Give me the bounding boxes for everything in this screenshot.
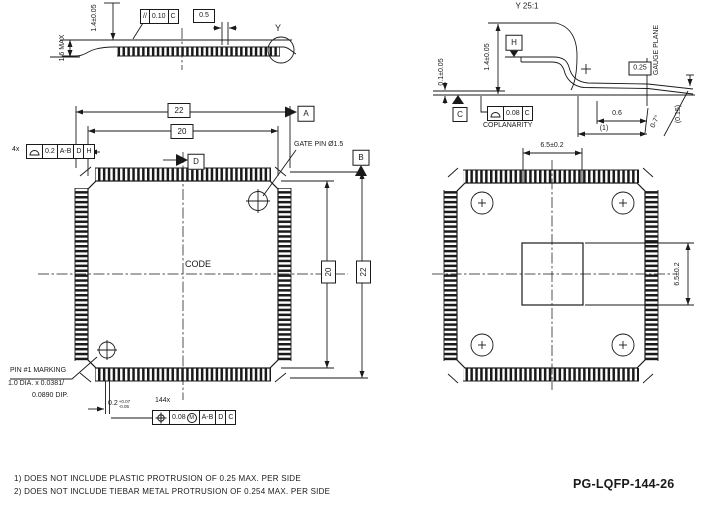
code-label: CODE bbox=[185, 259, 211, 269]
position-tolerance-cell: 0.08 M bbox=[169, 411, 199, 424]
datum-b-wrap: B bbox=[353, 147, 370, 166]
body-width-box: 20 bbox=[171, 124, 194, 139]
lead-width-dim: 0.2 +0.07 -0.05 bbox=[108, 399, 130, 409]
datum-b-box: B bbox=[353, 149, 370, 165]
part-number: PG-LQFP-144-26 bbox=[573, 477, 674, 491]
detail-view-title: Y 25:1 bbox=[516, 2, 539, 11]
detail-callout-label: Y bbox=[275, 23, 281, 33]
pin1-marking-line2: 1.0 DIA. x 0.0381/ bbox=[8, 380, 64, 388]
parallelism-tolerance: 0.10 bbox=[149, 10, 168, 23]
pin1-marking-line1: PIN #1 MARKING bbox=[10, 367, 66, 375]
profile-frame-count: 4x bbox=[12, 146, 19, 154]
side-height-max-dim: 1.6 MAX bbox=[59, 35, 67, 62]
position-datum-1: A-B bbox=[199, 411, 216, 424]
parallelism-symbol-icon: // bbox=[141, 10, 149, 23]
datum-c-wrap: C bbox=[453, 104, 468, 122]
profile-datum-3: H bbox=[83, 145, 93, 158]
overall-width-box: 22 bbox=[168, 103, 191, 118]
overall-width-wrap: 22 bbox=[168, 100, 191, 118]
note-1: 1) DOES NOT INCLUDE PLASTIC PROTRUSION O… bbox=[14, 474, 301, 483]
position-datum-3: C bbox=[225, 411, 235, 424]
gauge-offset-box: 0.25 bbox=[629, 62, 652, 76]
overall-height-wrap: 22 bbox=[353, 261, 371, 284]
parallelism-datum: C bbox=[168, 10, 178, 23]
position-frame: 0.08 M A-B D C bbox=[152, 410, 236, 425]
pad-height-dim: 6.5±0.2 bbox=[674, 262, 682, 285]
foot-length-dim: 0.6 bbox=[612, 110, 622, 118]
gate-pin-label: GATE PIN Ø1.5 bbox=[294, 141, 343, 149]
datum-a-wrap: A bbox=[298, 103, 315, 122]
profile-symbol-icon bbox=[27, 145, 42, 158]
gauge-offset-wrap: 0.25 bbox=[629, 57, 652, 76]
datum-a-box: A bbox=[298, 105, 315, 121]
detail-body-thickness-dim: 1.4±0.05 bbox=[484, 43, 492, 70]
gauge-plane-label: GAUGE PLANE bbox=[653, 25, 661, 75]
position-symbol-icon bbox=[153, 411, 169, 424]
position-tolerance: 0.08 bbox=[172, 414, 186, 421]
package-drawing-canvas: 1.4±0.05 1.6 MAX // 0.10 C 0.5 Y Y 25:1 … bbox=[0, 0, 717, 512]
pin1-marking-line3: 0.0890 DIP. bbox=[32, 392, 68, 400]
mmc-modifier-icon: M bbox=[187, 413, 197, 423]
datum-d-box: D bbox=[188, 153, 205, 169]
body-height-box: 20 bbox=[321, 261, 336, 284]
coplanarity-datum: C bbox=[522, 107, 532, 120]
datum-h-box: H bbox=[506, 34, 523, 50]
datum-h-wrap: H bbox=[506, 32, 523, 51]
datum-d-wrap: D bbox=[188, 151, 205, 170]
datum-c-box: C bbox=[453, 107, 468, 122]
body-height-wrap: 20 bbox=[318, 261, 336, 284]
lead-width-minus: -0.05 bbox=[119, 404, 130, 409]
profile-datum-1: A-B bbox=[57, 145, 74, 158]
lead-width-value: 0.2 bbox=[108, 400, 118, 408]
profile-tolerance: 0.2 bbox=[42, 145, 57, 158]
body-width-wrap: 20 bbox=[171, 121, 194, 139]
coplanarity-frame: 0.08 C bbox=[487, 106, 533, 121]
profile-symbol-icon bbox=[488, 107, 503, 120]
profile-frame: 0.2 A-B D H bbox=[26, 144, 95, 159]
detail-standoff-dim: 0.1±0.05 bbox=[438, 58, 446, 85]
bottom-view-linework bbox=[432, 148, 694, 390]
position-frame-count: 144x bbox=[155, 397, 170, 405]
position-datum-2: D bbox=[215, 411, 225, 424]
coplanarity-label: COPLANARITY bbox=[483, 122, 532, 130]
lead-width-tolerances: +0.07 -0.05 bbox=[119, 399, 130, 409]
overall-height-box: 22 bbox=[356, 261, 371, 284]
foot-ref-dim: (1) bbox=[600, 125, 609, 133]
note-2: 2) DOES NOT INCLUDE TIEBAR METAL PROTRUS… bbox=[14, 487, 330, 496]
pitch-dim-box: 0.5 bbox=[193, 9, 215, 23]
side-body-thickness-dim: 1.4±0.05 bbox=[91, 4, 99, 31]
pad-width-dim: 6.5±0.2 bbox=[540, 142, 563, 150]
coplanarity-tolerance: 0.08 bbox=[503, 107, 522, 120]
profile-datum-2: D bbox=[73, 145, 83, 158]
parallelism-frame: // 0.10 C bbox=[140, 9, 179, 24]
drawing-linework bbox=[0, 0, 717, 512]
tip-ref-dim: (0.15) bbox=[675, 105, 683, 123]
